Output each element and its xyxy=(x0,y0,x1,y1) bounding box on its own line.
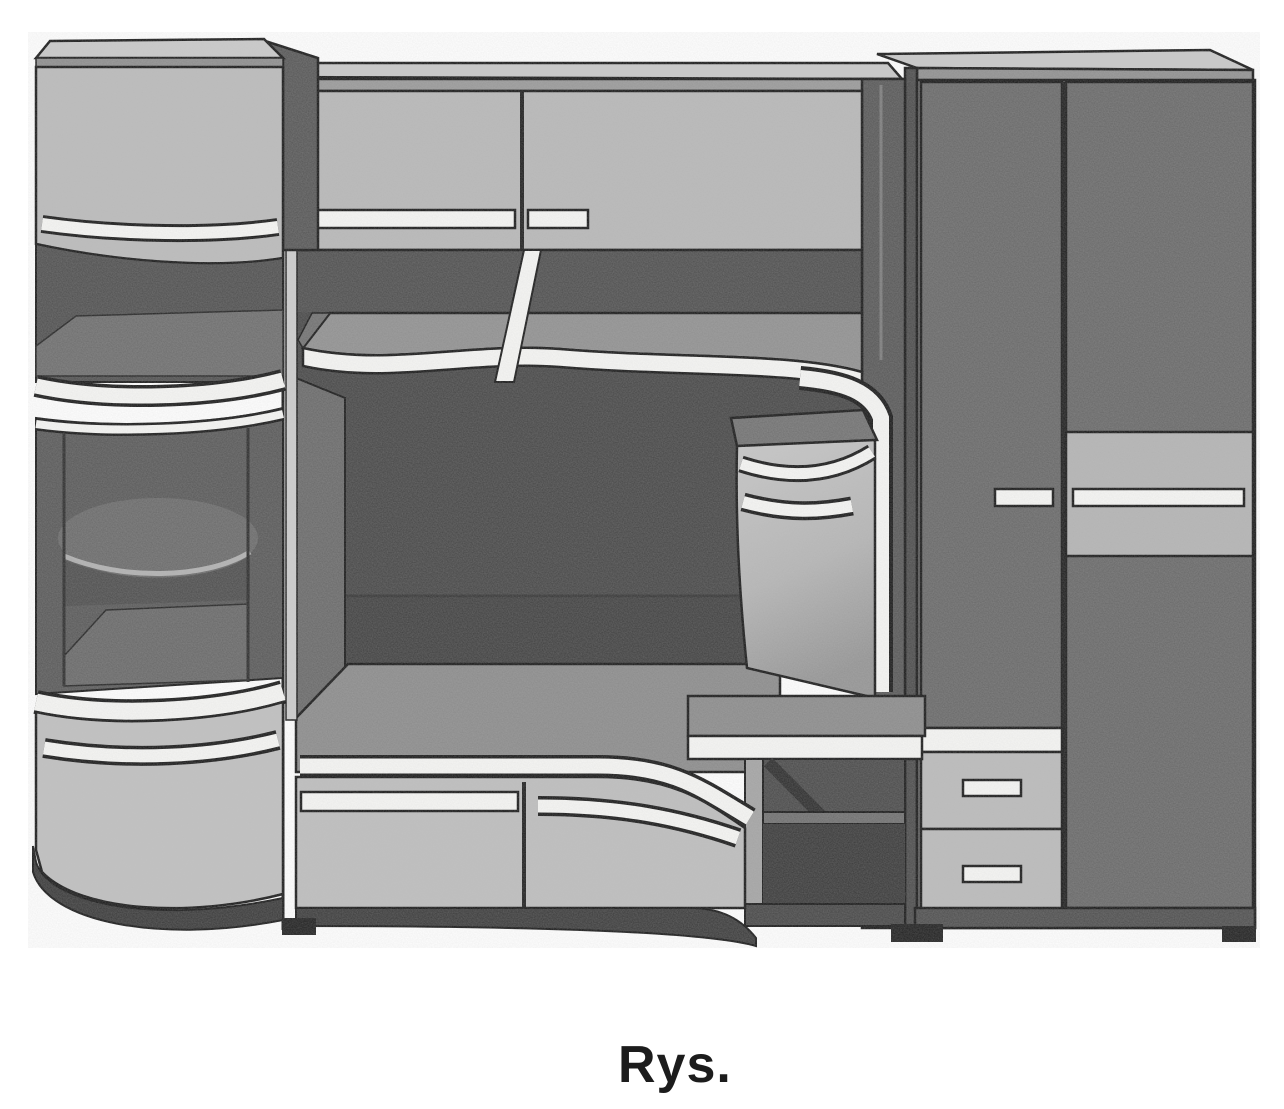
figure-page: Rys. xyxy=(0,0,1284,1109)
scan-grain-overlay xyxy=(28,32,1260,948)
furniture-figure: Rys. xyxy=(0,0,1284,1109)
figure-caption: Rys. xyxy=(618,1036,732,1094)
